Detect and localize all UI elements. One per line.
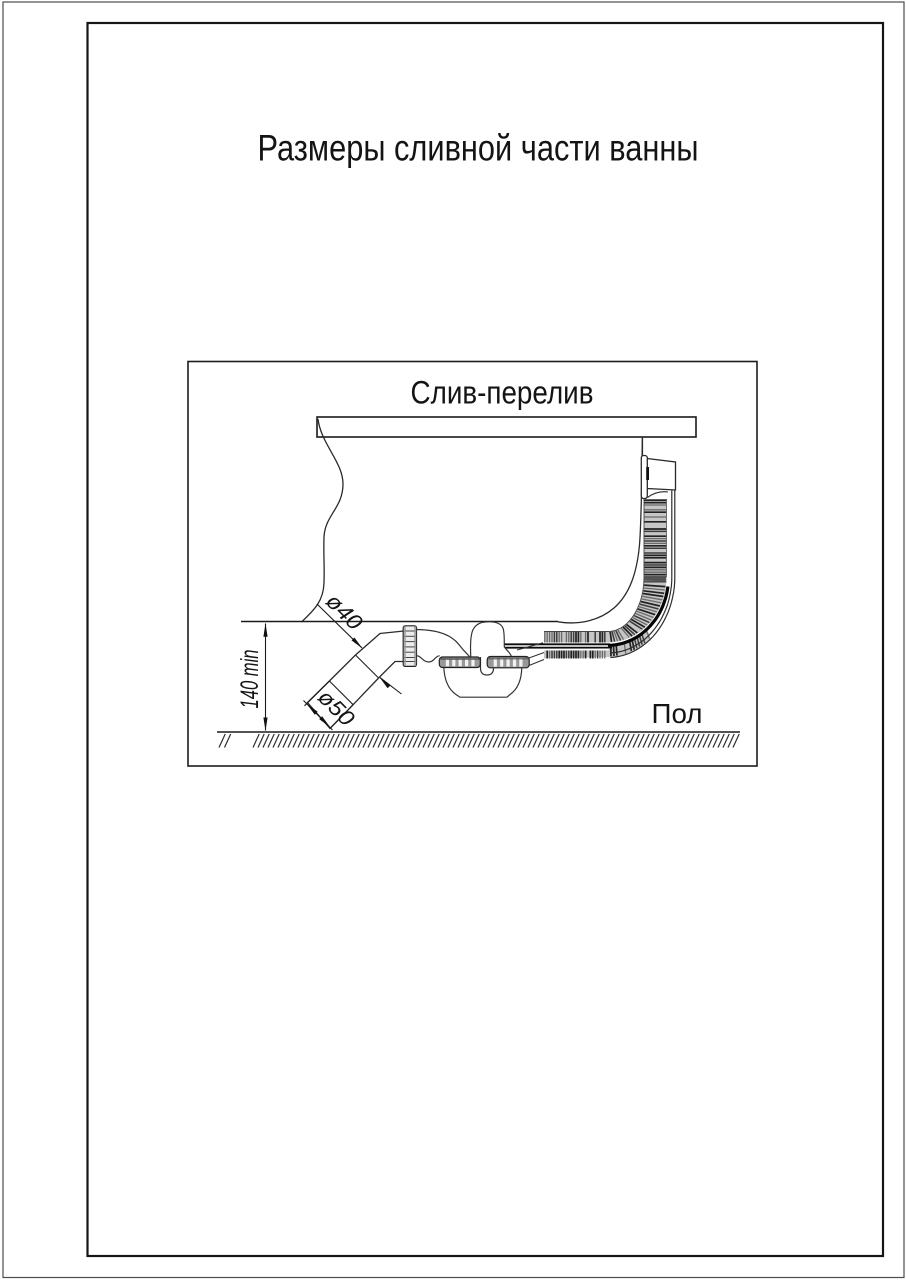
svg-text:140 min: 140 min xyxy=(236,650,264,709)
svg-text:Слив-перелив: Слив-перелив xyxy=(411,375,594,411)
svg-text:Размеры сливной части ванны: Размеры сливной части ванны xyxy=(258,128,699,169)
svg-text:Пол: Пол xyxy=(652,698,703,729)
